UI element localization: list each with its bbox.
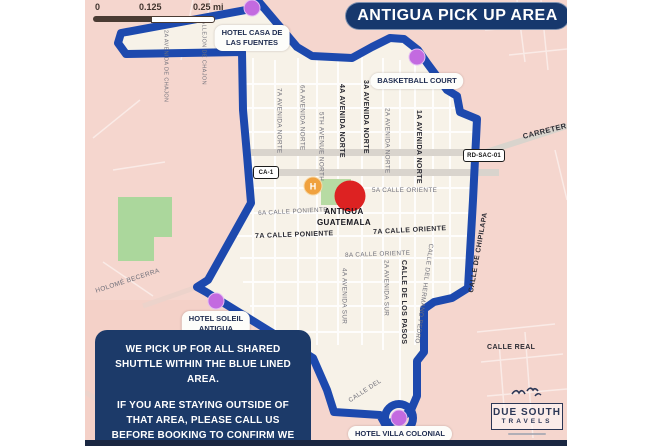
info-paragraph-2: IF YOU ARE STAYING OUTSIDE OF THAT AREA,…	[104, 398, 302, 446]
page-title: ANTIGUA PICK UP AREA	[345, 2, 567, 30]
central-park-green-square	[321, 179, 351, 205]
scale-tick-mid: 0.125	[139, 2, 162, 12]
main-road-upper	[243, 149, 485, 156]
main-road-ca1	[245, 169, 499, 176]
logo-name: DUE SOUTH	[492, 407, 562, 418]
road-shield-ca-1: CA-1	[253, 166, 279, 179]
scale-tick-zero: 0	[95, 2, 100, 12]
due-south-travels-logo: DUE SOUTH TRAVELS	[488, 384, 566, 435]
antigua-map: 7A AVENIDA NORTE6A AVENIDA NORTE5TH AVEN…	[85, 0, 567, 446]
info-paragraph-1: WE PICK UP FOR ALL SHARED SHUTTLE WITHIN…	[104, 342, 302, 387]
logo-tagline-line	[508, 433, 546, 435]
birds-icon	[510, 384, 544, 397]
road-shield-rd-sac-01: RD-SAC-01	[463, 149, 505, 162]
scale-bar: 0 0.125 0.25 mi	[93, 2, 233, 22]
scale-tick-end: 0.25 mi	[193, 2, 224, 12]
logo-sub: TRAVELS	[492, 418, 562, 426]
scale-track	[93, 16, 215, 22]
pickup-info-box: WE PICK UP FOR ALL SHARED SHUTTLE WITHIN…	[95, 330, 311, 446]
scale-empty-segment	[151, 16, 215, 23]
logo-box: DUE SOUTH TRAVELS	[491, 403, 563, 430]
scale-filled-segment	[93, 16, 151, 22]
photo-edge-strip	[85, 440, 567, 446]
